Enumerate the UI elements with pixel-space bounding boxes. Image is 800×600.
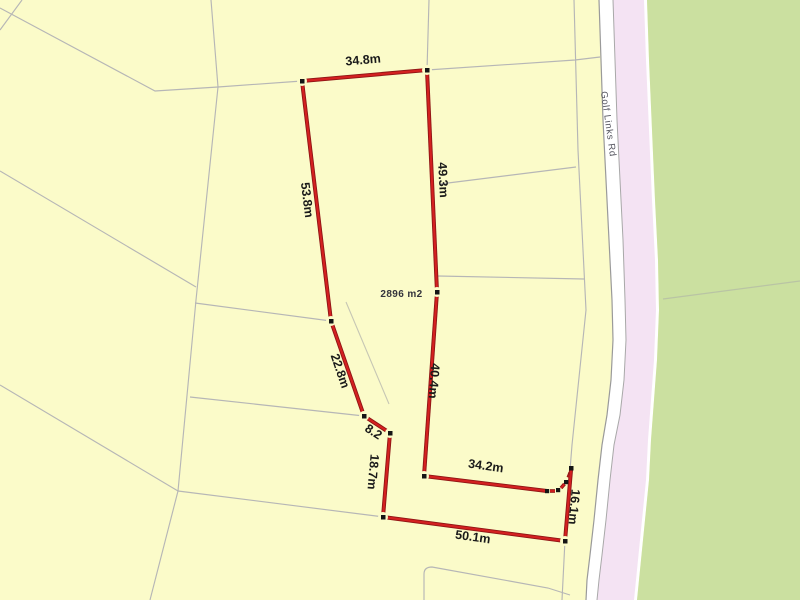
svg-text:49.3m: 49.3m (435, 162, 451, 198)
svg-text:2896 m2: 2896 m2 (380, 289, 422, 300)
svg-text:40.4m: 40.4m (426, 363, 442, 399)
